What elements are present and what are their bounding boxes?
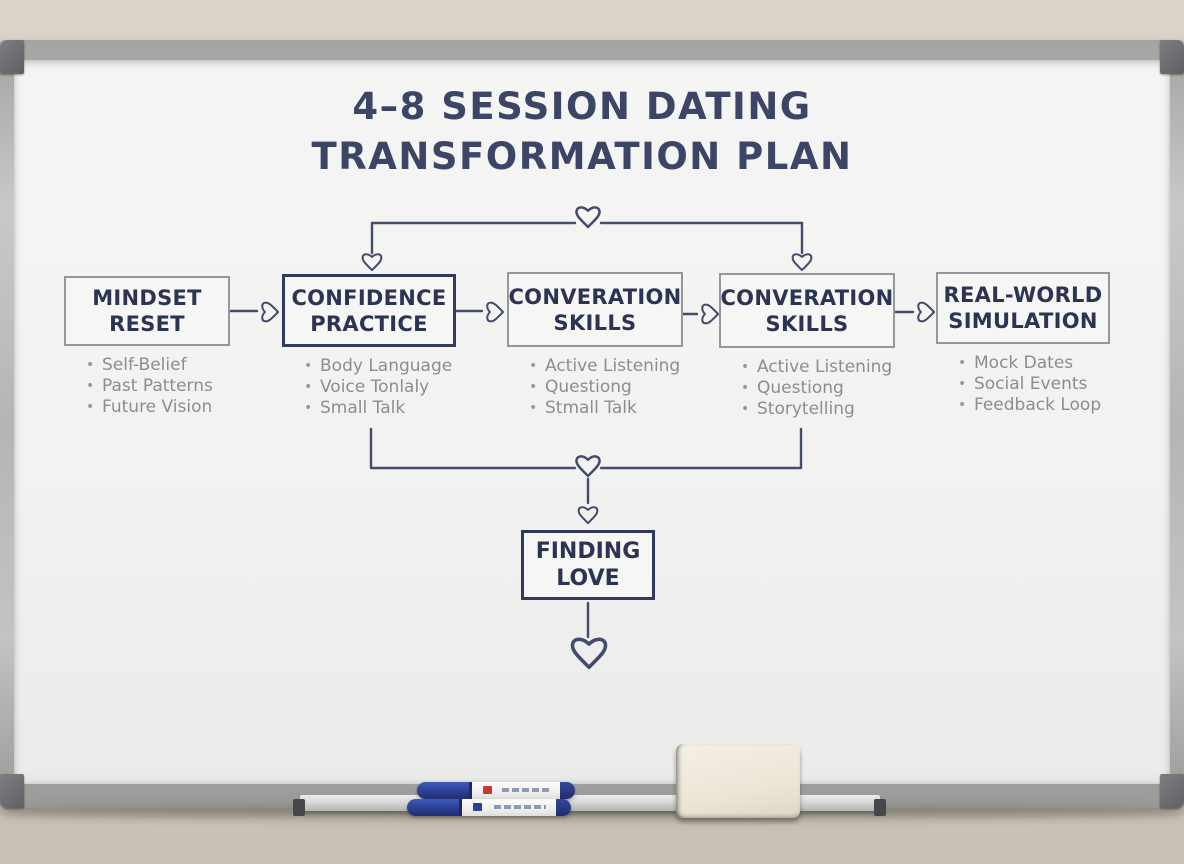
stage-box-real-world-simulation: REAL-WORLD SIMULATION — [936, 272, 1110, 344]
whiteboard-eraser — [676, 744, 800, 818]
heart-arrowhead-down-icon — [579, 507, 598, 523]
bullet-item: Social Events — [958, 374, 1110, 395]
marker-body — [462, 799, 556, 816]
stage-mindset-reset: MINDSET RESET Self-Belief Past Patterns … — [64, 276, 230, 418]
stage-bullets: Active Listening Questiong Stmall Talk — [507, 356, 683, 419]
bullet-item: Body Language — [304, 356, 456, 377]
stage-bullets: Body Language Voice Tonlaly Small Talk — [282, 356, 456, 419]
bullet-item: Mock Dates — [958, 353, 1110, 374]
heart-icon — [576, 456, 599, 476]
heart-arrowhead-right-icon — [702, 305, 718, 324]
marker-logo-chip — [473, 803, 482, 811]
tray-end-cap — [874, 799, 886, 816]
bullet-item: Self-Belief — [86, 355, 230, 376]
heart-arrowhead-right-icon — [918, 303, 934, 322]
top-bracket-right — [601, 223, 802, 253]
marker-pen-2 — [407, 799, 571, 816]
bullet-item: Stmall Talk — [529, 398, 683, 419]
marker-pen-1 — [417, 782, 575, 799]
tray-end-cap — [293, 799, 305, 816]
marker-cap — [407, 799, 462, 816]
marker-body — [472, 782, 560, 799]
stage-box-conversation-skills-2: CONVERATION SKILLS — [719, 273, 895, 348]
bullet-item: Feedback Loop — [958, 395, 1110, 416]
stage-box-finding-love: FINDING LOVE — [521, 530, 655, 600]
marker-label-text — [502, 788, 550, 792]
bullet-item: Small Talk — [304, 398, 456, 419]
bullet-item: Questiong — [529, 377, 683, 398]
whiteboard-photo: 4–8 SESSION DATING TRANSFORMATION PLAN — [0, 0, 1184, 864]
marker-label-text — [494, 805, 546, 809]
stage-bullets: Active Listening Questiong Storytelling — [719, 357, 895, 420]
stage-conversation-skills-2: CONVERATION SKILLS Active Listening Ques… — [719, 273, 895, 420]
bottom-bracket-right — [601, 429, 801, 468]
top-bracket-left — [372, 223, 575, 253]
marker-logo-chip — [483, 786, 492, 794]
stage-box-confidence-practice: CONFIDENCE PRACTICE — [282, 274, 456, 347]
heart-arrowhead-down-icon — [573, 639, 606, 667]
heart-icon — [576, 207, 599, 227]
stage-bullets: Self-Belief Past Patterns Future Vision — [64, 355, 230, 418]
flow-connectors — [0, 0, 1184, 864]
stage-confidence-practice: CONFIDENCE PRACTICE Body Language Voice … — [282, 274, 456, 419]
bullet-item: Voice Tonlaly — [304, 377, 456, 398]
heart-arrowhead-right-icon — [262, 303, 278, 322]
stage-box-mindset-reset: MINDSET RESET — [64, 276, 230, 346]
stage-real-world-simulation: REAL-WORLD SIMULATION Mock Dates Social … — [936, 272, 1110, 416]
heart-arrowhead-down-icon — [793, 254, 812, 270]
bullet-item: Future Vision — [86, 397, 230, 418]
bottom-bracket-left — [371, 429, 575, 468]
bullet-item: Active Listening — [741, 357, 895, 378]
heart-arrowhead-right-icon — [487, 303, 503, 322]
bullet-item: Storytelling — [741, 399, 895, 420]
bullet-item: Questiong — [741, 378, 895, 399]
marker-cap — [417, 782, 472, 799]
heart-arrowhead-down-icon — [363, 254, 382, 270]
stage-conversation-skills-1: CONVERATION SKILLS Active Listening Ques… — [507, 272, 683, 419]
bullet-item: Past Patterns — [86, 376, 230, 397]
stage-box-conversation-skills-1: CONVERATION SKILLS — [507, 272, 683, 347]
bullet-item: Active Listening — [529, 356, 683, 377]
stage-bullets: Mock Dates Social Events Feedback Loop — [936, 353, 1110, 416]
